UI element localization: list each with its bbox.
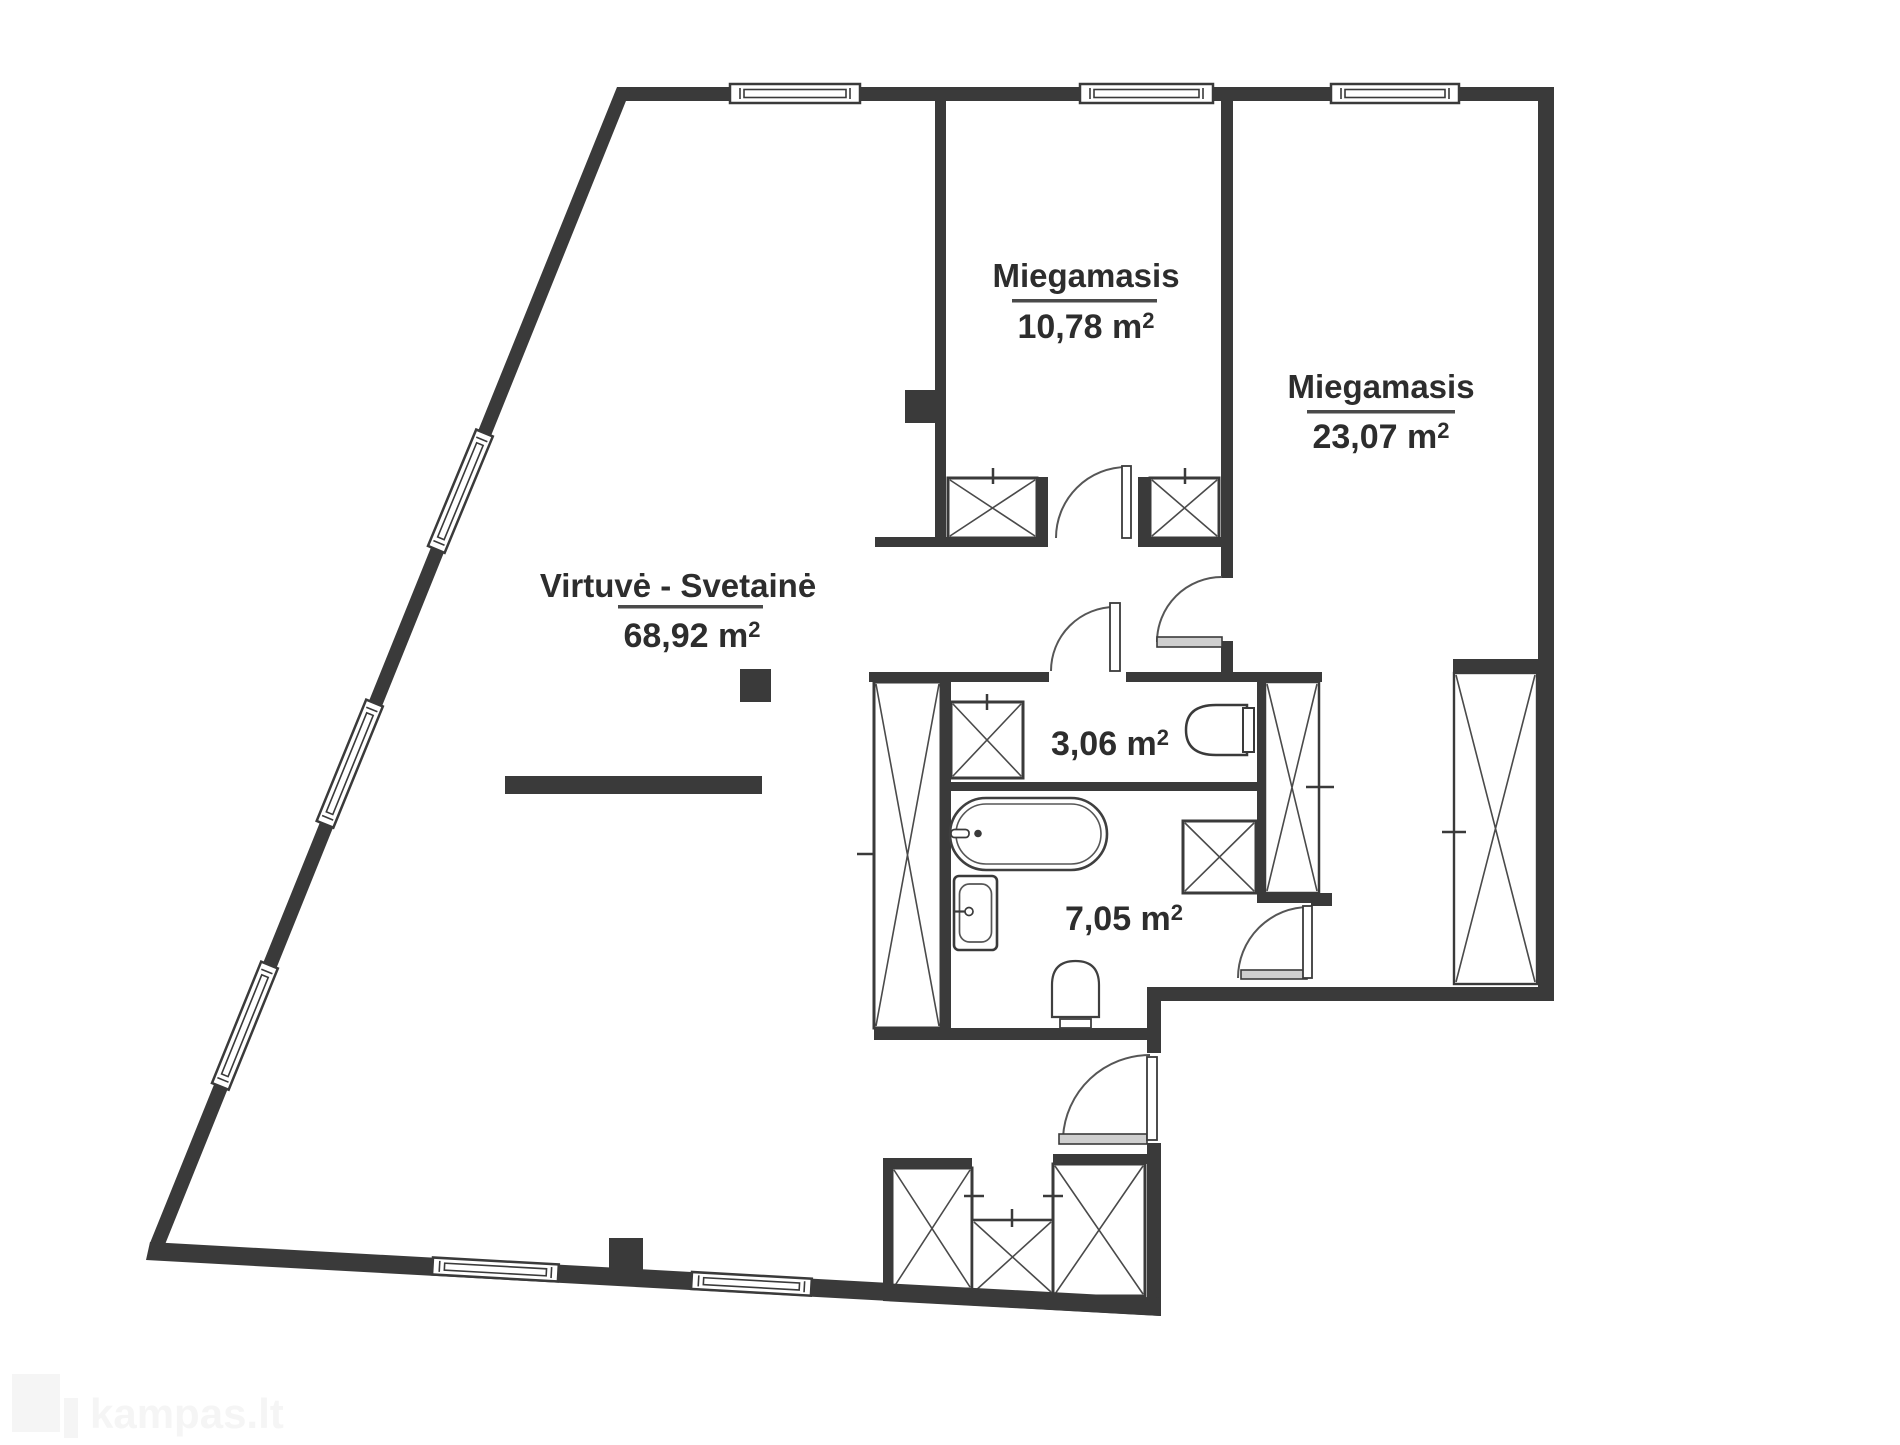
svg-text:23,07 m2: 23,07 m2 xyxy=(1312,418,1449,456)
svg-text:Virtuvė - Svetainė: Virtuvė - Svetainė xyxy=(540,567,816,604)
svg-text:68,92 m2: 68,92 m2 xyxy=(623,617,760,655)
svg-text:Miegamasis: Miegamasis xyxy=(992,257,1179,294)
svg-text:Miegamasis: Miegamasis xyxy=(1287,368,1474,405)
svg-text:10,78 m2: 10,78 m2 xyxy=(1017,308,1154,346)
svg-text:7,05 m2: 7,05 m2 xyxy=(1065,900,1183,938)
svg-text:3,06 m2: 3,06 m2 xyxy=(1051,725,1169,763)
svg-text:kampas.lt: kampas.lt xyxy=(90,1390,284,1437)
